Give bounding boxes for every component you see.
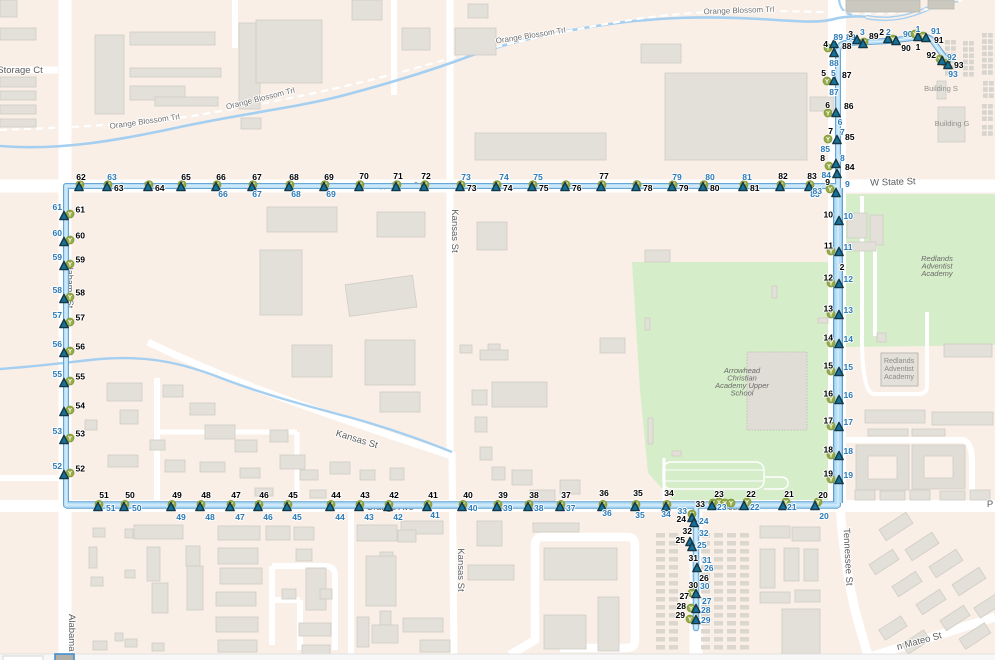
svg-text:Building S: Building S: [924, 84, 958, 93]
svg-text:26: 26: [704, 563, 714, 573]
svg-text:W State St: W State St: [870, 176, 916, 189]
svg-text:School: School: [731, 389, 754, 398]
svg-text:52: 52: [76, 464, 86, 474]
svg-text:56: 56: [76, 342, 86, 352]
svg-text:62: 62: [76, 172, 86, 182]
svg-text:14: 14: [823, 333, 833, 343]
svg-text:53: 53: [76, 429, 86, 439]
svg-text:15: 15: [844, 362, 854, 372]
svg-text:60: 60: [52, 228, 62, 238]
svg-text:20: 20: [818, 490, 828, 500]
svg-text:Y: Y: [825, 80, 829, 86]
svg-text:71: 71: [393, 171, 403, 181]
svg-text:49: 49: [172, 490, 182, 500]
svg-text:36: 36: [602, 508, 612, 518]
svg-text:Y: Y: [826, 138, 830, 144]
svg-text:Y: Y: [829, 478, 833, 484]
svg-text:59: 59: [76, 255, 86, 265]
svg-text:18: 18: [823, 445, 833, 455]
svg-text:Academy: Academy: [884, 372, 914, 381]
svg-text:83: 83: [812, 186, 822, 196]
svg-text:9: 9: [825, 177, 830, 187]
svg-text:12: 12: [844, 274, 854, 284]
svg-text:48: 48: [205, 512, 215, 522]
svg-text:Academy: Academy: [920, 269, 954, 278]
svg-text:11: 11: [844, 242, 853, 252]
svg-text:88: 88: [842, 41, 852, 51]
svg-text:92: 92: [926, 50, 936, 60]
svg-text:10: 10: [844, 211, 854, 221]
svg-text:21: 21: [787, 502, 797, 512]
svg-text:Y: Y: [829, 342, 833, 348]
svg-text:1: 1: [916, 24, 921, 34]
svg-text:41: 41: [428, 490, 438, 500]
svg-text:79: 79: [672, 172, 682, 182]
svg-text:2: 2: [879, 27, 884, 37]
svg-text:57: 57: [52, 310, 62, 320]
svg-text:64: 64: [155, 183, 165, 193]
svg-text:Y: Y: [729, 502, 733, 508]
svg-text:66: 66: [216, 172, 226, 182]
svg-text:82: 82: [778, 171, 788, 181]
svg-text:24: 24: [699, 516, 709, 526]
svg-text:40: 40: [468, 503, 478, 513]
svg-text:51: 51: [106, 503, 116, 513]
svg-text:50: 50: [125, 490, 135, 500]
svg-text:32: 32: [682, 526, 692, 536]
svg-text:80: 80: [705, 172, 715, 182]
svg-text:40: 40: [463, 490, 473, 500]
svg-text:51: 51: [99, 490, 109, 500]
svg-text:12: 12: [823, 273, 833, 283]
svg-text:79: 79: [679, 183, 689, 193]
svg-text:30: 30: [700, 581, 710, 591]
svg-text:Y: Y: [68, 472, 72, 478]
svg-text:35: 35: [633, 488, 643, 498]
svg-text:35: 35: [635, 510, 645, 520]
svg-text:41: 41: [430, 510, 440, 520]
svg-text:28: 28: [701, 605, 711, 615]
svg-text:11: 11: [824, 241, 833, 251]
svg-text:33: 33: [695, 499, 705, 509]
svg-text:15: 15: [823, 361, 833, 371]
svg-text:50: 50: [132, 503, 142, 513]
svg-text:67: 67: [252, 189, 262, 199]
svg-text:Y: Y: [829, 454, 833, 460]
svg-text:80: 80: [710, 183, 720, 193]
svg-text:68: 68: [291, 189, 301, 199]
svg-text:29: 29: [675, 610, 685, 620]
svg-text:21: 21: [784, 489, 794, 499]
svg-text:46: 46: [263, 512, 273, 522]
svg-text:Y: Y: [828, 188, 832, 194]
svg-text:22: 22: [750, 502, 760, 512]
svg-text:58: 58: [52, 285, 62, 295]
svg-text:17: 17: [823, 416, 833, 426]
svg-text:91: 91: [934, 35, 944, 45]
svg-text:81: 81: [750, 183, 760, 193]
svg-text:47: 47: [231, 490, 241, 500]
svg-text:74: 74: [499, 172, 509, 182]
svg-text:52: 52: [52, 461, 62, 471]
svg-text:58: 58: [76, 288, 86, 298]
svg-text:Y: Y: [829, 370, 833, 376]
svg-text:Y: Y: [829, 282, 833, 288]
svg-text:83: 83: [807, 171, 817, 181]
svg-text:89: 89: [833, 32, 843, 42]
svg-text:87: 87: [842, 70, 852, 80]
svg-text:65: 65: [181, 172, 191, 182]
svg-text:34: 34: [661, 509, 671, 519]
svg-text:37: 37: [561, 490, 571, 500]
svg-text:42: 42: [389, 490, 399, 500]
svg-text:22: 22: [746, 489, 756, 499]
svg-text:7: 7: [828, 126, 833, 136]
svg-text:39: 39: [498, 490, 508, 500]
svg-text:18: 18: [844, 446, 854, 456]
svg-text:19: 19: [844, 470, 854, 480]
svg-text:25: 25: [675, 535, 685, 545]
svg-text:27: 27: [679, 591, 689, 601]
svg-text:Kansas St: Kansas St: [449, 209, 460, 253]
svg-text:44: 44: [335, 512, 345, 522]
svg-text:53: 53: [52, 426, 62, 436]
svg-text:56: 56: [52, 339, 62, 349]
svg-text:6: 6: [838, 117, 843, 127]
svg-text:88: 88: [829, 58, 839, 68]
svg-text:6: 6: [825, 100, 830, 110]
svg-text:49: 49: [176, 512, 186, 522]
svg-text:Building G: Building G: [935, 119, 970, 128]
svg-text:43: 43: [360, 490, 370, 500]
svg-text:66: 66: [218, 189, 228, 199]
svg-text:84: 84: [845, 162, 855, 172]
svg-text:23: 23: [714, 489, 724, 499]
svg-text:45: 45: [288, 490, 298, 500]
svg-text:73: 73: [461, 172, 471, 182]
svg-text:Y: Y: [826, 112, 830, 118]
svg-text:10: 10: [823, 210, 833, 220]
svg-text:3: 3: [860, 27, 865, 37]
svg-text:86: 86: [844, 101, 854, 111]
svg-text:2: 2: [886, 27, 891, 37]
svg-text:37: 37: [566, 503, 576, 513]
svg-text:85: 85: [845, 132, 855, 142]
svg-text:61: 61: [76, 205, 86, 215]
svg-text:9: 9: [845, 179, 850, 189]
svg-text:43: 43: [364, 512, 374, 522]
svg-text:38: 38: [534, 503, 544, 513]
svg-text:69: 69: [326, 189, 336, 199]
svg-text:Y: Y: [68, 263, 72, 269]
svg-text:16: 16: [823, 389, 833, 399]
svg-text:39: 39: [503, 503, 513, 513]
svg-text:8: 8: [820, 153, 825, 163]
svg-text:19: 19: [823, 469, 833, 479]
svg-text:Y: Y: [68, 296, 72, 302]
svg-text:4: 4: [823, 39, 828, 49]
svg-text:13: 13: [823, 304, 833, 314]
svg-text:Y: Y: [68, 380, 72, 386]
svg-text:Y: Y: [829, 425, 833, 431]
svg-text:5: 5: [831, 68, 836, 78]
svg-text:72: 72: [421, 171, 431, 181]
svg-text:46: 46: [259, 490, 269, 500]
svg-text:23: 23: [717, 502, 727, 512]
svg-text:Y: Y: [68, 321, 72, 327]
svg-text:Kansas St: Kansas St: [455, 548, 466, 592]
svg-text:13: 13: [844, 305, 854, 315]
svg-text:93: 93: [948, 69, 958, 79]
svg-text:60: 60: [76, 231, 86, 241]
svg-text:45: 45: [292, 512, 302, 522]
svg-text:47: 47: [235, 512, 245, 522]
svg-text:59: 59: [52, 252, 62, 262]
svg-text:24: 24: [676, 514, 686, 524]
svg-text:32: 32: [699, 528, 709, 538]
svg-text:57: 57: [76, 313, 86, 323]
svg-text:25: 25: [697, 540, 707, 550]
svg-text:17: 17: [844, 417, 854, 427]
svg-text:75: 75: [533, 172, 543, 182]
svg-text:70: 70: [359, 171, 369, 181]
svg-text:2: 2: [840, 262, 845, 272]
svg-text:Y: Y: [829, 313, 833, 319]
svg-text:69: 69: [324, 172, 334, 182]
svg-text:55: 55: [52, 369, 62, 379]
svg-text:42: 42: [393, 512, 403, 522]
svg-text:73: 73: [467, 183, 477, 193]
svg-text:67: 67: [252, 172, 262, 182]
svg-text:55: 55: [76, 372, 86, 382]
svg-text:Y: Y: [68, 239, 72, 245]
svg-text:54: 54: [76, 401, 86, 411]
svg-text:Storage Ct: Storage Ct: [0, 65, 43, 76]
svg-text:61: 61: [52, 202, 62, 212]
svg-text:P: P: [987, 499, 993, 510]
svg-text:44: 44: [331, 490, 341, 500]
svg-text:90: 90: [901, 43, 911, 53]
svg-text:38: 38: [529, 490, 539, 500]
svg-text:68: 68: [289, 172, 299, 182]
svg-text:29: 29: [701, 615, 711, 625]
svg-text:Y: Y: [68, 213, 72, 219]
svg-text:20: 20: [819, 511, 829, 521]
svg-text:1: 1: [916, 42, 921, 52]
svg-text:Y: Y: [829, 250, 833, 256]
svg-text:Y: Y: [68, 350, 72, 356]
svg-text:5: 5: [821, 68, 826, 78]
svg-text:48: 48: [201, 490, 211, 500]
svg-text:14: 14: [844, 334, 854, 344]
svg-text:34: 34: [664, 488, 674, 498]
svg-text:16: 16: [844, 390, 854, 400]
svg-text:36: 36: [599, 488, 609, 498]
svg-text:77: 77: [599, 171, 609, 181]
svg-text:78: 78: [643, 183, 653, 193]
svg-text:81: 81: [742, 172, 752, 182]
svg-text:Alabama St: Alabama St: [66, 614, 77, 660]
svg-text:74: 74: [503, 183, 513, 193]
svg-text:63: 63: [114, 183, 124, 193]
svg-text:75: 75: [539, 183, 549, 193]
svg-text:Y: Y: [68, 409, 72, 415]
svg-text:3: 3: [848, 29, 853, 39]
svg-text:76: 76: [572, 183, 582, 193]
svg-text:89: 89: [869, 31, 879, 41]
svg-text:87: 87: [829, 87, 839, 97]
svg-text:30: 30: [688, 580, 698, 590]
svg-text:Y: Y: [68, 437, 72, 443]
svg-text:Y: Y: [829, 398, 833, 404]
svg-text:31: 31: [688, 553, 698, 563]
svg-text:63: 63: [107, 172, 117, 182]
svg-text:Y: Y: [688, 618, 692, 624]
